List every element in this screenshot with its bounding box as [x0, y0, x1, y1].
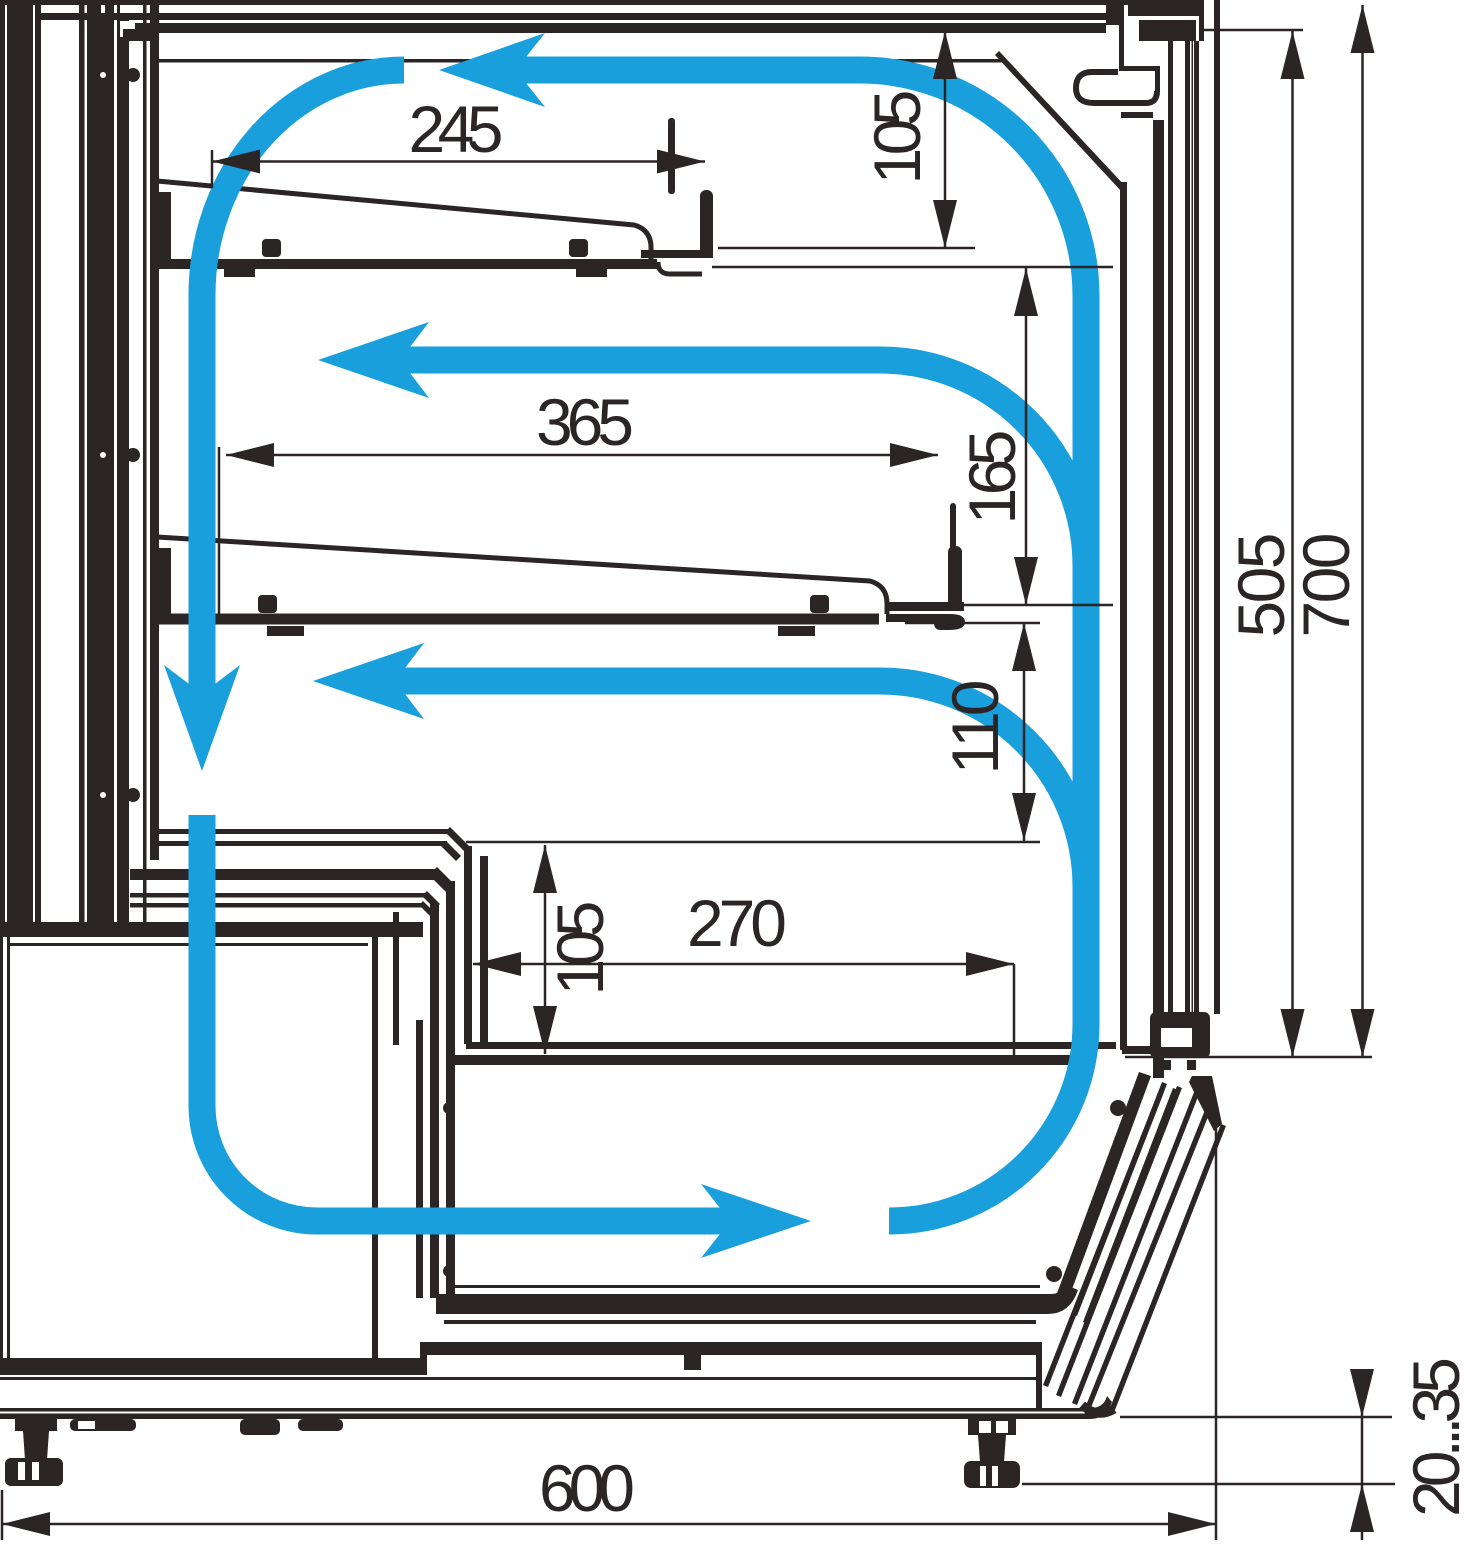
svg-text:20...35: 20...35	[1399, 1357, 1468, 1517]
svg-text:365: 365	[536, 385, 634, 459]
svg-text:165: 165	[955, 430, 1029, 525]
svg-text:270: 270	[687, 886, 787, 960]
svg-text:700: 700	[1289, 533, 1363, 638]
svg-text:105: 105	[860, 90, 934, 185]
svg-text:105: 105	[543, 901, 617, 996]
svg-text:110: 110	[938, 680, 1012, 775]
svg-text:245: 245	[409, 92, 504, 166]
svg-text:600: 600	[539, 1451, 635, 1525]
svg-text:505: 505	[1224, 533, 1298, 638]
